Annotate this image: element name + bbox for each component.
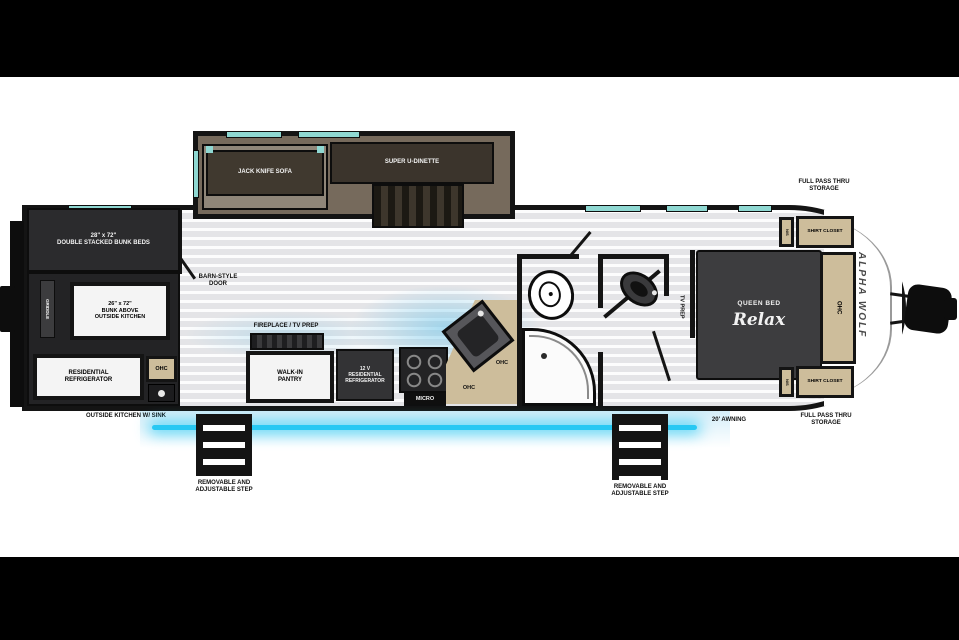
bunk-above-outside-kitchen: 26" x 72" BUNK ABOVE OUTSIDE KITCHEN [70,282,170,340]
dinette-seats [372,184,464,228]
microwave: MICRO [404,393,446,406]
barn-door-label: BARN-STYLE DOOR [186,274,250,288]
letterbox-bottom [0,557,959,640]
bedroom-tv-wall [690,250,695,338]
outside-kitchen-ohc: OHC [146,356,177,382]
ohc-label-3: OHC [456,385,482,392]
floorplan-canvas: ALPHA WOLF JACK KNIFE SOFA SUPER U-DINET… [0,0,959,640]
hitch-coupler [944,298,957,320]
shirt-closet-top-label: SHIRT CLOSET [807,229,842,235]
hall-window [666,205,708,212]
range-cooktop [399,347,448,393]
kitchen-sink-basin [456,314,501,359]
entry-steps-right [612,414,668,480]
griddle-label: GRIDDLE [45,299,50,319]
double-bunks-label: 28" x 72" DOUBLE STACKED BUNK BEDS [57,233,150,247]
tv-prep-label: TV PREP [678,284,685,330]
residential-refrigerator-label: RESIDENTIAL REFRIGERATOR [65,370,112,384]
shirt-closet-bottom: SHIRT CLOSET [796,366,854,398]
shower-drain [541,353,547,359]
walk-in-pantry: WALK-IN PANTRY [246,351,334,403]
ohc-label-1: OHC [155,366,167,373]
bunk-above-label: 26" x 72" BUNK ABOVE OUTSIDE KITCHEN [95,301,145,321]
ohc-label-2: OHC [489,360,515,367]
bedroom-window [738,205,772,212]
outside-kitchen-label: OUTSIDE KITCHEN W/ SINK [40,413,212,420]
refrigerator-12v-label: 12 V RESIDENTIAL REFRIGERATOR [345,366,385,384]
outside-kitchen-sink [148,384,175,402]
sofa-label: JACK KNIFE SOFA [238,169,292,176]
sofa-pillow-right [317,146,324,153]
vanity-faucet [651,289,658,296]
residential-refrigerator: RESIDENTIAL REFRIGERATOR [33,354,144,400]
vanity-sink-basin [627,278,650,300]
relax-logo: Relax [733,310,786,330]
fireplace-label: FIREPLACE / TV PREP [238,323,334,330]
pantry-label: WALK-IN PANTRY [277,370,303,384]
refrigerator-12v: 12 V RESIDENTIAL REFRIGERATOR [336,349,394,401]
kitchen-window [585,205,641,212]
nightstand-top: N/S [779,217,794,247]
slideout-window-2 [298,131,360,138]
dinette-label: SUPER U-DINETTE [385,159,439,166]
queen-bed-label: QUEEN BED [737,300,780,308]
double-stacked-bunks: 28" x 72" DOUBLE STACKED BUNK BEDS [27,208,180,272]
bathroom-wall-right-upper [598,254,603,308]
step-label-right: REMOVABLE AND ADJUSTABLE STEP [580,484,700,498]
brand-logo-text: ALPHA WOLF [856,252,867,372]
slideout-window-1 [226,131,282,138]
ns-label-bottom: N/S [784,379,789,386]
letterbox-top [0,0,959,77]
shirt-closet-bottom-label: SHIRT CLOSET [807,379,842,385]
sink-basin-dot [158,390,165,397]
shirt-closet-top: SHIRT CLOSET [796,216,854,248]
fireplace-tv-prep-unit [250,333,324,350]
bedroom-ohc: OHC [820,252,856,364]
jack-knife-sofa: JACK KNIFE SOFA [206,150,324,196]
full-pass-thru-top-label: FULL PASS THRU STORAGE [788,179,860,193]
ohc-label-4: OHC [834,301,841,314]
griddle: GRIDDLE [40,280,55,338]
ns-label-top: N/S [784,229,789,236]
step-label-left: REMOVABLE AND ADJUSTABLE STEP [164,480,284,494]
vanity-wall-right [664,254,669,296]
slideout-window-side [193,150,199,198]
vanity-wall-top [603,254,669,259]
awning-label: 20' AWNING [698,417,760,424]
super-u-dinette: SUPER U-DINETTE [330,142,494,184]
sofa-pillow-left [206,146,213,153]
full-pass-thru-bottom-label: FULL PASS THRU STORAGE [790,413,862,427]
bathroom-wall-right-lower [598,352,603,406]
micro-label: MICRO [416,396,434,403]
nightstand-bottom: N/S [779,367,794,397]
rear-receiver-box [0,286,15,332]
entry-steps-left [196,414,252,476]
queen-bed: QUEEN BED Relax [696,250,822,380]
